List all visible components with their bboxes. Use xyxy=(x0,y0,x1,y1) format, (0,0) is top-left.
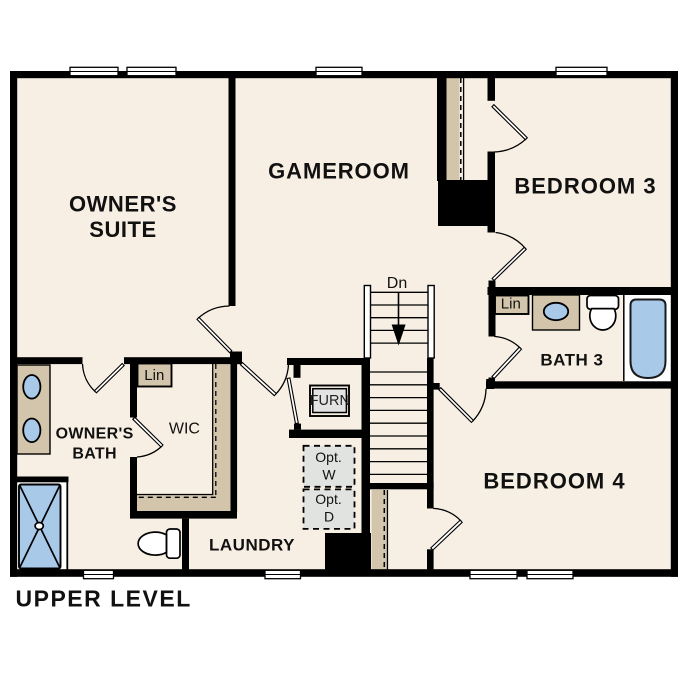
svg-text:Opt.: Opt. xyxy=(315,491,341,507)
svg-text:SUITE: SUITE xyxy=(89,217,157,242)
svg-text:FURN: FURN xyxy=(310,393,350,409)
svg-text:BATH: BATH xyxy=(72,446,116,463)
svg-text:WIC: WIC xyxy=(169,421,200,438)
svg-text:BEDROOM 3: BEDROOM 3 xyxy=(514,174,656,199)
svg-text:Lin: Lin xyxy=(144,367,164,384)
svg-text:BEDROOM 4: BEDROOM 4 xyxy=(483,469,625,494)
svg-text:W: W xyxy=(322,467,336,483)
svg-text:BATH 3: BATH 3 xyxy=(540,351,603,370)
svg-text:Dn: Dn xyxy=(387,275,407,292)
svg-text:GAMEROOM: GAMEROOM xyxy=(268,159,410,184)
svg-text:OWNER'S: OWNER'S xyxy=(56,426,134,443)
svg-text:Opt.: Opt. xyxy=(315,449,341,465)
svg-text:OWNER'S: OWNER'S xyxy=(69,192,177,217)
svg-text:D: D xyxy=(324,508,334,524)
svg-text:Lin: Lin xyxy=(501,296,521,313)
svg-text:UPPER LEVEL: UPPER LEVEL xyxy=(16,586,192,612)
svg-text:LAUNDRY: LAUNDRY xyxy=(209,536,295,555)
